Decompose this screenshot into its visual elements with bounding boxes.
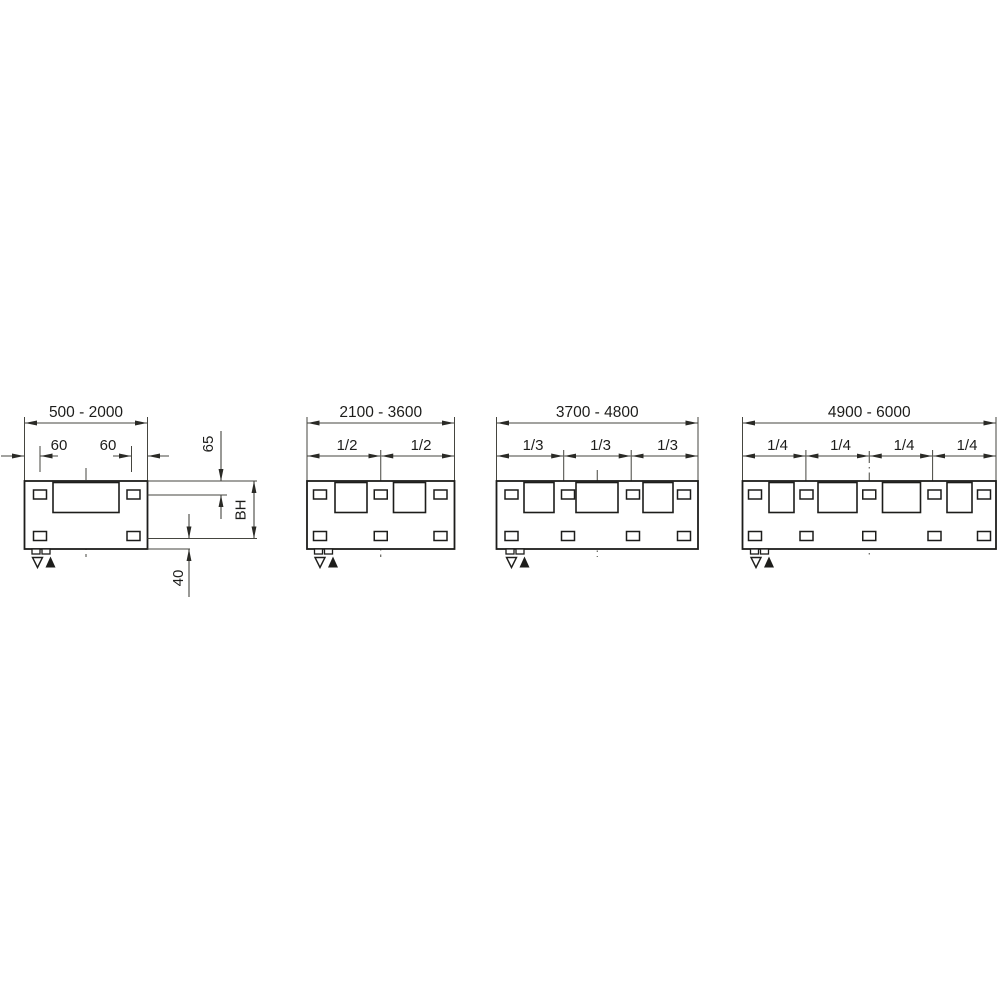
window-cutout xyxy=(576,483,618,513)
wall-tab xyxy=(32,549,40,554)
dim-40-label: 40 xyxy=(170,570,187,587)
segment-label: 1/3 xyxy=(523,437,544,454)
technical-drawing-canvas: 500 - 2000 60 60 65 BH 4 xyxy=(0,0,1000,1000)
mounting-bracket xyxy=(127,532,140,541)
segment-label: 1/2 xyxy=(337,437,358,454)
mounting-bracket xyxy=(374,490,387,499)
mounting-bracket xyxy=(374,532,387,541)
mounting-bracket xyxy=(800,532,813,541)
figure-width-2100-3600: 2100 - 3600 1/2 1/2 xyxy=(307,404,455,568)
mounting-bracket xyxy=(627,490,640,499)
open-triangle-symbol xyxy=(33,558,43,568)
mounting-bracket xyxy=(749,490,762,499)
mounting-bracket xyxy=(34,532,47,541)
window-cutout xyxy=(769,483,794,513)
wall-tab xyxy=(42,549,50,554)
mounting-bracket xyxy=(749,532,762,541)
mounting-bracket xyxy=(505,532,518,541)
mounting-bracket xyxy=(505,490,518,499)
wall-tab xyxy=(516,549,524,554)
window-cutout xyxy=(335,483,367,513)
mounting-dimension-diagram: 500 - 2000 60 60 65 BH 4 xyxy=(0,0,1000,1000)
wall-tab xyxy=(315,549,323,554)
mounting-bracket xyxy=(928,532,941,541)
mounting-bracket xyxy=(434,532,447,541)
segment-label: 1/4 xyxy=(830,437,851,454)
width-range-label: 2100 - 3600 xyxy=(339,404,422,421)
mounting-bracket xyxy=(562,532,575,541)
width-range-label: 3700 - 4800 xyxy=(556,404,639,421)
width-range-label: 500 - 2000 xyxy=(49,404,123,421)
mounting-bracket xyxy=(562,490,575,499)
filled-triangle-symbol xyxy=(328,557,338,568)
mounting-bracket xyxy=(34,490,47,499)
mounting-bracket xyxy=(863,490,876,499)
mounting-bracket xyxy=(678,490,691,499)
window-cutout xyxy=(394,483,426,513)
wall-tab xyxy=(761,549,769,554)
mounting-bracket xyxy=(434,490,447,499)
mounting-bracket xyxy=(314,532,327,541)
mounting-bracket xyxy=(863,532,876,541)
mounting-bracket xyxy=(127,490,140,499)
mounting-bracket xyxy=(800,490,813,499)
filled-triangle-symbol xyxy=(520,557,530,568)
window-cutout xyxy=(818,483,857,513)
segment-label: 1/4 xyxy=(894,437,915,454)
mounting-bracket xyxy=(928,490,941,499)
mounting-bracket xyxy=(627,532,640,541)
wall-tab xyxy=(506,549,514,554)
open-triangle-symbol xyxy=(315,558,325,568)
window-cutout xyxy=(643,483,673,513)
mounting-bracket xyxy=(314,490,327,499)
window-cutout xyxy=(524,483,554,513)
window-cutout xyxy=(53,483,119,513)
mounting-bracket xyxy=(678,532,691,541)
wall-tab xyxy=(325,549,333,554)
figure-width-500-2000: 500 - 2000 60 60 65 BH 4 xyxy=(1,404,257,597)
dim-65-label: 65 xyxy=(200,436,217,453)
mounting-bracket xyxy=(978,490,991,499)
segment-label: 1/4 xyxy=(957,437,978,454)
dim-bh-label: BH xyxy=(233,500,250,521)
window-cutout xyxy=(883,483,921,513)
segment-label: 1/3 xyxy=(590,437,611,454)
segment-label: 1/4 xyxy=(767,437,788,454)
filled-triangle-symbol xyxy=(46,557,56,568)
open-triangle-symbol xyxy=(507,558,517,568)
mounting-bracket xyxy=(978,532,991,541)
figure-width-3700-4800: 3700 - 4800 1/3 1/3 1/3 xyxy=(497,404,699,568)
segment-label: 60 xyxy=(100,437,117,454)
segment-label: 60 xyxy=(51,437,68,454)
width-range-label: 4900 - 6000 xyxy=(828,404,911,421)
open-triangle-symbol xyxy=(751,558,761,568)
filled-triangle-symbol xyxy=(764,557,774,568)
wall-tab xyxy=(751,549,759,554)
segment-label: 1/3 xyxy=(657,437,678,454)
segment-label: 1/2 xyxy=(411,437,432,454)
figure-width-4900-6000: 4900 - 6000 1/4 1/4 1/4 1/4 xyxy=(743,404,997,568)
window-cutout xyxy=(947,483,972,513)
